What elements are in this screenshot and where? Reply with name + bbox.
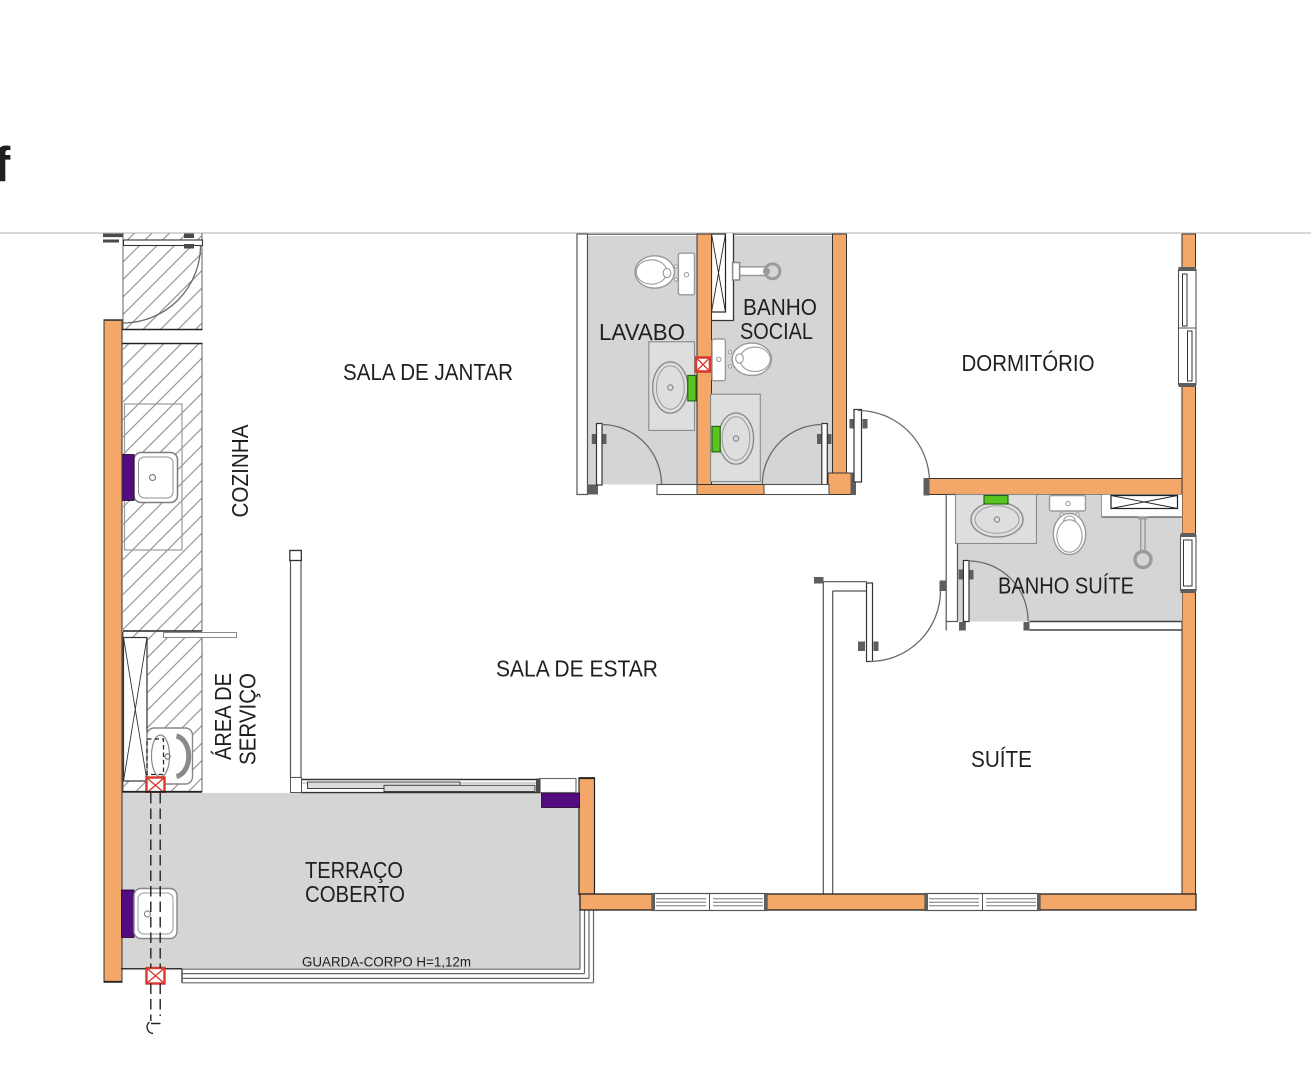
svg-text:DORMITÓRIO: DORMITÓRIO [962,350,1095,376]
svg-text:SUÍTE: SUÍTE [971,746,1032,772]
svg-text:SOCIAL: SOCIAL [740,318,813,344]
svg-text:SALA DE JANTAR: SALA DE JANTAR [343,359,513,385]
svg-text:COBERTO: COBERTO [305,881,405,907]
svg-text:TERRAÇO: TERRAÇO [305,857,403,883]
svg-text:BANHO SUÍTE: BANHO SUÍTE [998,573,1134,599]
svg-text:ÁREA DE: ÁREA DE [210,673,236,760]
svg-text:SERVIÇO: SERVIÇO [235,673,261,765]
svg-text:GUARDA-CORPO H=1,12m: GUARDA-CORPO H=1,12m [302,953,471,969]
svg-text:SALA DE ESTAR: SALA DE ESTAR [496,656,658,682]
svg-text:LAVABO: LAVABO [599,319,685,345]
svg-text:COZINHA: COZINHA [227,424,253,518]
svg-text:f: f [0,138,11,192]
svg-text:BANHO: BANHO [743,294,817,320]
